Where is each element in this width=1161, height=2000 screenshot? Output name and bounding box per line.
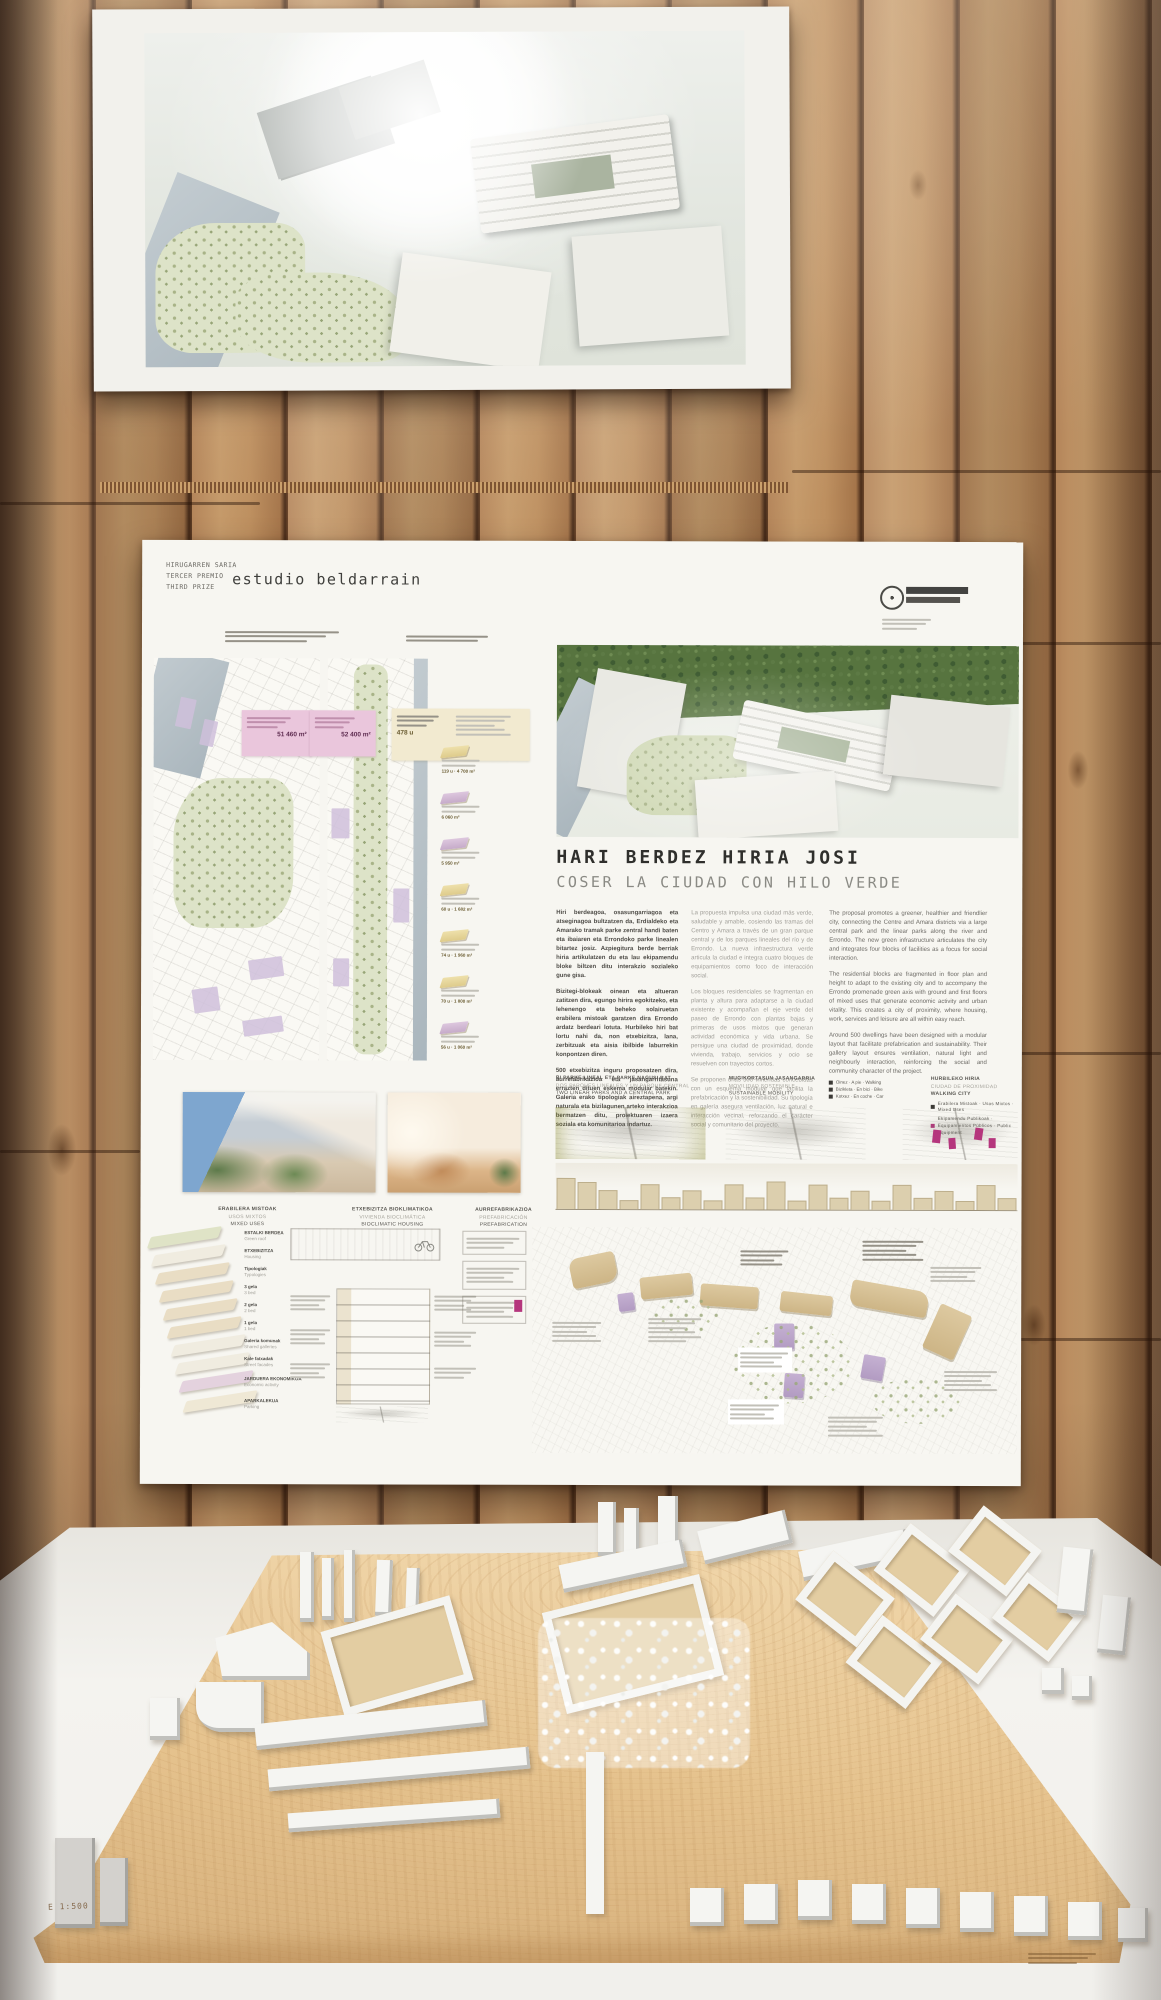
total-units-value: 478 u bbox=[397, 729, 450, 736]
model-building bbox=[150, 1698, 180, 1740]
label-en: Economic activity bbox=[244, 1382, 302, 1388]
bicycle-icon bbox=[413, 1238, 435, 1252]
block-axon-chip bbox=[440, 929, 469, 942]
top-presentation-board bbox=[92, 6, 791, 391]
label-en: Typologies bbox=[244, 1272, 302, 1278]
logo-text-bar bbox=[906, 597, 960, 603]
prize-line-en: THIRD PRIZE bbox=[166, 582, 237, 593]
street-section-strip bbox=[290, 1228, 440, 1260]
bioclimatic-header: ETXEBIZITZA BIOKLIMATIKOA VIVIENDA BIOCL… bbox=[312, 1206, 472, 1229]
prize-label: HIRUGARREN SARIA TERCER PREMIO THIRD PRI… bbox=[166, 560, 237, 593]
equipment-block bbox=[514, 1299, 522, 1311]
model-building bbox=[690, 1888, 724, 1926]
micro-text bbox=[441, 1036, 481, 1043]
model-engraved-stamp bbox=[1028, 1950, 1100, 1966]
equipment-block bbox=[974, 1128, 984, 1141]
light-haze bbox=[556, 645, 1019, 838]
housing-block bbox=[849, 1279, 930, 1318]
legend-value: 74 u · 1 960 m² bbox=[441, 953, 481, 958]
intro-paragraph: Hiri berdeagoa, osasungarriagoa eta atse… bbox=[556, 909, 678, 981]
intro-column-spanish: La propuesta impulsa una ciudad más verd… bbox=[691, 909, 814, 1137]
equipment-block bbox=[948, 1138, 956, 1149]
header-en: TWO LINEAR PARKS AND A CENTRAL PARK bbox=[556, 1090, 671, 1096]
micro-text bbox=[315, 717, 357, 728]
header-en: WALKING CITY bbox=[931, 1091, 1026, 1099]
masterplan-header bbox=[200, 628, 370, 644]
building-section-drawing bbox=[336, 1288, 430, 1404]
micro-text bbox=[397, 715, 441, 726]
central-park bbox=[173, 778, 293, 928]
block-axon-chip bbox=[439, 975, 468, 988]
model-bridge bbox=[586, 1752, 604, 1914]
header-en: PREFABRICATION bbox=[480, 1222, 527, 1228]
interior-render-photo bbox=[388, 1092, 521, 1192]
prefab-card bbox=[462, 1295, 526, 1324]
plan-annotation bbox=[552, 1319, 604, 1344]
model-building bbox=[1118, 1908, 1148, 1942]
bike-icon bbox=[829, 1087, 833, 1091]
intro-column-basque: Hiri berdeagoa, osasungarriagoa eta atse… bbox=[556, 909, 679, 1137]
plank-joint bbox=[0, 1150, 140, 1153]
facility-block bbox=[617, 1292, 635, 1312]
building-footprint bbox=[248, 956, 284, 980]
model-scale-stamp: E 1:500 bbox=[48, 1901, 89, 1911]
model-building bbox=[55, 1838, 95, 1928]
legend-label: Kotxez · En coche · Car bbox=[836, 1094, 884, 1099]
studio-name: estudio beldarrain bbox=[232, 570, 422, 588]
model-building bbox=[852, 1884, 886, 1924]
legend-item: 56 u · 1 060 m² bbox=[441, 1023, 481, 1050]
plan-annotation bbox=[738, 1347, 792, 1372]
model-building bbox=[906, 1888, 940, 1928]
housing-block bbox=[922, 1303, 973, 1361]
micro-text bbox=[466, 1267, 522, 1283]
intro-paragraph: Los bloques residenciales se fragmentan … bbox=[691, 988, 813, 1069]
legend-label: Oinez · A pie · Walking bbox=[836, 1080, 881, 1085]
legend-row: Oinez · A pie · Walking bbox=[829, 1080, 925, 1085]
project-title-eu: HARI BERDEZ HIRIA JOSI bbox=[556, 847, 860, 869]
housing-block bbox=[639, 1273, 693, 1300]
block-axon-chip bbox=[440, 745, 469, 758]
linear-park-header bbox=[394, 633, 504, 645]
header-eu: BI PARKE LINEAL ETA PARKE NAGUSI BAT bbox=[556, 1075, 724, 1083]
housing-block bbox=[779, 1291, 833, 1316]
model-building bbox=[598, 1502, 616, 1556]
site-stats-box: 52 400 m² bbox=[310, 710, 376, 756]
model-building bbox=[1042, 1668, 1064, 1694]
prize-line-eu: HIRUGARREN SARIA bbox=[166, 560, 237, 571]
plan-annotation bbox=[828, 1414, 886, 1439]
facility-block bbox=[860, 1354, 886, 1382]
model-building bbox=[300, 1552, 314, 1622]
section-annotation bbox=[434, 1365, 478, 1381]
legend-item: 60 u · 1 682 m² bbox=[441, 885, 481, 912]
ground-sketch bbox=[336, 1406, 428, 1422]
building-footprint bbox=[242, 1016, 284, 1037]
building-footprint bbox=[331, 808, 349, 838]
intro-paragraph: La propuesta impulsa una ciudad más verd… bbox=[691, 909, 813, 981]
street-elevation-strip bbox=[555, 1163, 1017, 1211]
header-es: PREFABRICACIÓN bbox=[458, 1214, 548, 1222]
stack-label: TipologiakTypologies bbox=[244, 1266, 302, 1278]
legend-value: 60 u · 1 682 m² bbox=[441, 907, 481, 912]
section-annotation bbox=[290, 1292, 332, 1313]
micro-text bbox=[882, 616, 934, 632]
building-footprint bbox=[393, 889, 409, 923]
model-building bbox=[375, 1560, 393, 1617]
equipment-block bbox=[932, 1130, 941, 1144]
competition-panel: HIRUGARREN SARIA TERCER PREMIO THIRD PRI… bbox=[140, 540, 1023, 1486]
mixed-uses-header: ERABILERA MISTOAK USOS MIXTOS MIXED USES bbox=[182, 1206, 312, 1229]
intro-paragraph: The residential blocks are fragmented in… bbox=[829, 971, 987, 1025]
legend-item: 6 060 m² bbox=[442, 793, 482, 820]
legend-item: 74 u · 1 960 m² bbox=[441, 931, 481, 958]
model-building bbox=[744, 1884, 778, 1924]
proposal-aerial-render bbox=[556, 645, 1019, 838]
walking-icon bbox=[829, 1080, 833, 1084]
micro-text bbox=[456, 715, 514, 735]
micro-text bbox=[441, 852, 481, 859]
prefab-card bbox=[462, 1231, 526, 1255]
mobility-diagram-header: MUGIKORTASUN JASANGARRIA MOVILIDAD SOSTE… bbox=[729, 1075, 821, 1098]
micro-text bbox=[406, 635, 492, 642]
micro-text bbox=[442, 760, 482, 767]
micro-text bbox=[441, 898, 481, 905]
model-building bbox=[1068, 1902, 1102, 1940]
legend-value: 70 u · 1 800 m² bbox=[441, 999, 481, 1004]
header-es: USOS MIXTOS bbox=[182, 1213, 312, 1221]
section-annotation bbox=[434, 1329, 478, 1350]
header-en: BIOCLIMATIC HOUSING bbox=[361, 1221, 423, 1227]
car-icon bbox=[829, 1094, 833, 1098]
mobility-legend: Oinez · A pie · Walking Bizikleta · En b… bbox=[829, 1078, 925, 1101]
micro-text bbox=[441, 944, 481, 951]
parks-sketch bbox=[556, 1107, 706, 1159]
section-annotation bbox=[290, 1326, 332, 1347]
built-area-value: 52 400 m² bbox=[315, 731, 371, 738]
building-footprint bbox=[192, 986, 221, 1013]
micro-text bbox=[247, 717, 293, 728]
intro-column-english: The proposal promotes a greener, healthi… bbox=[829, 910, 987, 1084]
model-building bbox=[798, 1880, 832, 1920]
mobility-sketch bbox=[726, 1107, 866, 1159]
model-building bbox=[100, 1858, 128, 1926]
plan-annotation bbox=[944, 1368, 1000, 1393]
stack-layer-chip bbox=[178, 1370, 253, 1393]
logo-text-bar bbox=[906, 587, 968, 594]
label-en: Parking bbox=[244, 1404, 302, 1410]
plan-annotation bbox=[728, 1399, 784, 1424]
plank-joint bbox=[0, 502, 260, 505]
model-building bbox=[1014, 1896, 1048, 1936]
model-building bbox=[960, 1892, 994, 1932]
block-axon-chip bbox=[440, 837, 469, 850]
legend-row: Bizikleta · En bici · Bike bbox=[829, 1087, 925, 1092]
header-eu: HURBILEKO HIRIA bbox=[931, 1076, 1026, 1084]
micro-text bbox=[466, 1237, 522, 1248]
model-building bbox=[344, 1550, 355, 1622]
prize-line-es: TERCER PREMIO bbox=[166, 571, 237, 582]
legend-row: Kotxez · En coche · Car bbox=[829, 1094, 925, 1099]
header-en: MIXED USES bbox=[231, 1221, 265, 1227]
proximity-sketch bbox=[903, 1108, 1018, 1160]
header-en: SUSTAINABLE MOBILITY bbox=[729, 1090, 794, 1096]
block-axon-chip bbox=[440, 883, 469, 896]
prefabrication-cards bbox=[462, 1231, 526, 1324]
header-eu: MUGIKORTASUN JASANGARRIA bbox=[729, 1075, 821, 1083]
project-title-es: COSER LA CIUDAD CON HILO VERDE bbox=[556, 873, 902, 892]
site-stats-box: 51 460 m² bbox=[242, 710, 312, 756]
exhibition-photo: HIRUGARREN SARIA TERCER PREMIO THIRD PRI… bbox=[0, 0, 1161, 2000]
parks-diagram-header: BI PARKE LINEAL ETA PARKE NAGUSI BAT DOS… bbox=[556, 1075, 724, 1098]
plan-annotation bbox=[740, 1247, 790, 1268]
plan-annotation bbox=[862, 1238, 926, 1263]
model-building bbox=[1072, 1676, 1092, 1700]
board-cardboard-edge bbox=[100, 482, 788, 493]
prefab-card bbox=[462, 1261, 526, 1290]
stack-label: APARKALEKUAParking bbox=[244, 1398, 302, 1410]
legend-item: 70 u · 1 800 m² bbox=[441, 977, 481, 1004]
legend-value: 119 u · 4 700 m² bbox=[442, 769, 482, 774]
equipment-block bbox=[989, 1138, 996, 1148]
intro-paragraph: The proposal promotes a greener, healthi… bbox=[829, 910, 987, 964]
micro-text bbox=[442, 806, 482, 813]
legend-item: 5 950 m² bbox=[441, 839, 481, 866]
built-area-value: 51 460 m² bbox=[247, 731, 307, 738]
block-axon-chip bbox=[439, 1021, 468, 1034]
intro-paragraph: Bizitegi-blokeak oinean eta altueran zat… bbox=[556, 988, 678, 1060]
plan-annotation bbox=[930, 1264, 984, 1285]
axonometric-masterplan bbox=[532, 1227, 1018, 1454]
intro-paragraph: Around 500 dwellings have been designed … bbox=[829, 1032, 987, 1077]
plan-annotation bbox=[648, 1315, 704, 1345]
gallery-render-photo bbox=[183, 1092, 376, 1193]
legend-value: 56 u · 1 060 m² bbox=[441, 1045, 481, 1050]
housing-block bbox=[568, 1251, 619, 1290]
legend-label: Bizikleta · En bici · Bike bbox=[836, 1087, 883, 1092]
plank-joint bbox=[792, 470, 1161, 473]
sun-flare bbox=[144, 31, 745, 368]
section-annotation bbox=[290, 1360, 332, 1381]
building-footprint bbox=[333, 958, 349, 986]
aerial-render-photo bbox=[144, 31, 745, 368]
model-building bbox=[322, 1558, 334, 1620]
legend-value: 5 950 m² bbox=[441, 861, 481, 866]
block-axon-chip bbox=[440, 791, 469, 804]
legend-item: 119 u · 4 700 m² bbox=[442, 747, 482, 774]
model-park-trees bbox=[538, 1618, 750, 1768]
micro-text bbox=[441, 990, 481, 997]
legend-value: 6 060 m² bbox=[442, 815, 482, 820]
emblem-icon bbox=[880, 586, 904, 610]
plank-joint bbox=[1008, 1052, 1161, 1055]
micro-text bbox=[225, 631, 345, 642]
